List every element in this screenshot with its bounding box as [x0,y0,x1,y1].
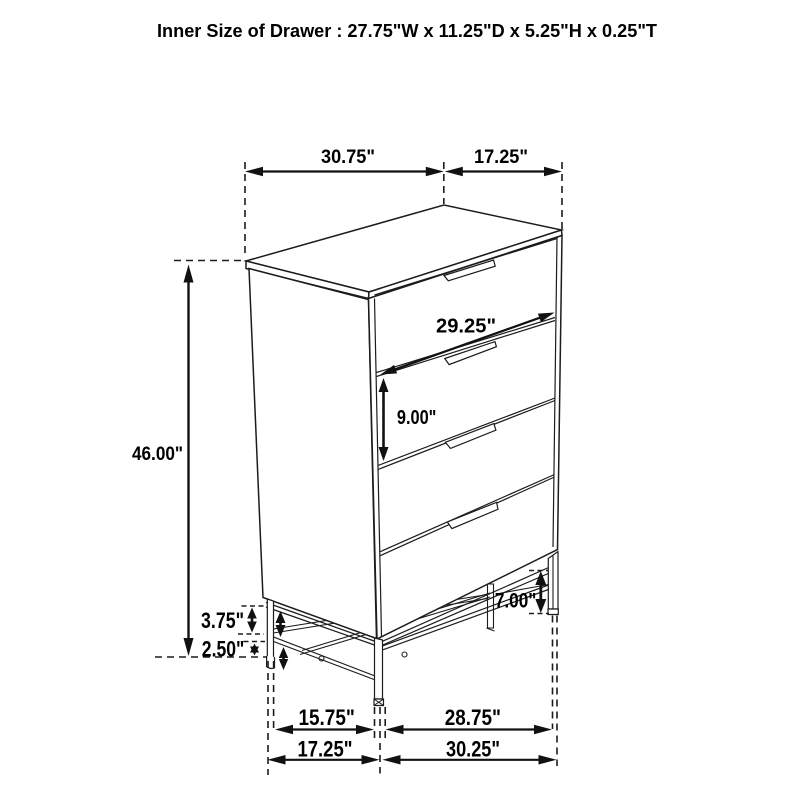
svg-text:46.00": 46.00" [132,444,183,465]
svg-text:28.75": 28.75" [445,705,501,730]
svg-text:15.75": 15.75" [299,705,355,730]
svg-text:30.75": 30.75" [321,147,375,168]
svg-text:30.25": 30.25" [446,737,500,762]
svg-text:3.75": 3.75" [201,608,244,633]
svg-text:9.00": 9.00" [397,407,437,429]
svg-text:17.25": 17.25" [298,737,353,762]
svg-text:17.25": 17.25" [474,147,528,168]
svg-text:Inner Size of Drawer : 27.75"W: Inner Size of Drawer : 27.75"W x 11.25"D… [157,21,657,41]
svg-text:7.00": 7.00" [495,590,537,613]
svg-text:29.25": 29.25" [436,316,496,338]
svg-text:2.50": 2.50" [202,637,245,662]
